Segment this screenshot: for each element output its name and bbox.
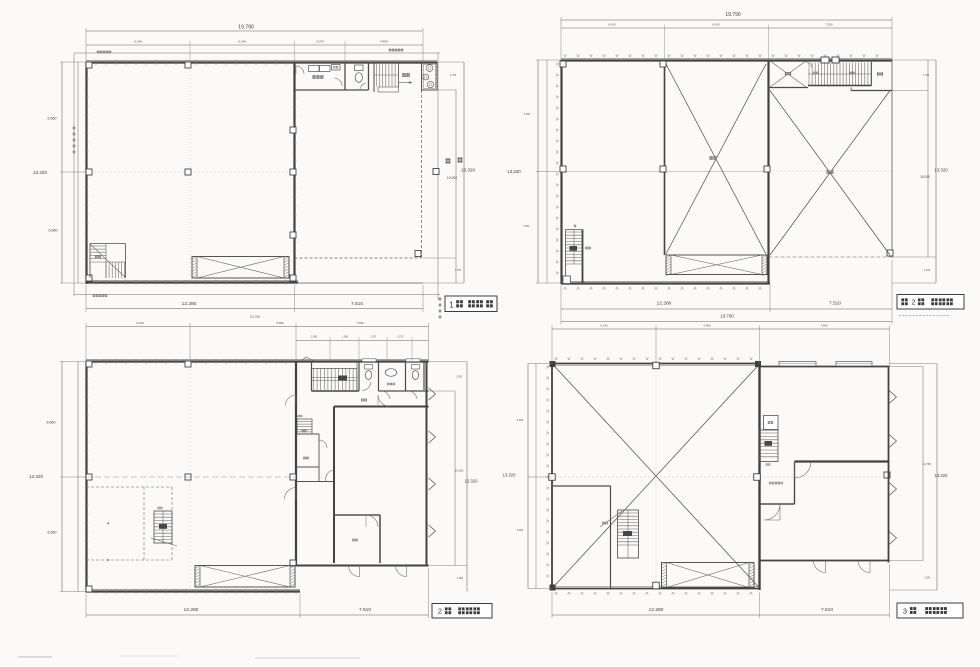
svg-text:19.790: 19.790 xyxy=(720,314,734,319)
svg-text:1.675: 1.675 xyxy=(370,336,377,339)
svg-text:1.175: 1.175 xyxy=(397,336,404,339)
svg-text:10.000: 10.000 xyxy=(447,176,457,180)
svg-text:19.790: 19.790 xyxy=(725,12,741,18)
svg-text:13.320: 13.320 xyxy=(33,170,47,175)
svg-text:12.280: 12.280 xyxy=(184,607,199,613)
svg-text:1.590: 1.590 xyxy=(342,336,349,339)
svg-text:5.990: 5.990 xyxy=(276,321,284,325)
svg-text:13.320: 13.320 xyxy=(503,473,516,478)
svg-text:3.075: 3.075 xyxy=(316,40,324,44)
svg-text:6.660: 6.660 xyxy=(49,229,58,233)
svg-text:7.490: 7.490 xyxy=(356,321,364,325)
svg-text:5.460: 5.460 xyxy=(524,113,531,116)
svg-text:7.510: 7.510 xyxy=(351,301,363,307)
svg-text:10.000: 10.000 xyxy=(920,175,930,179)
svg-text:4.495: 4.495 xyxy=(380,40,388,44)
svg-text:19.790: 19.790 xyxy=(250,315,260,319)
svg-text:13.320: 13.320 xyxy=(29,474,43,479)
svg-text:13.320: 13.320 xyxy=(935,473,948,478)
svg-text:6.660: 6.660 xyxy=(517,419,524,422)
svg-text:6.660: 6.660 xyxy=(47,421,56,425)
svg-text:7.510: 7.510 xyxy=(359,607,371,613)
svg-text:1.590: 1.590 xyxy=(924,577,931,580)
svg-text:1.750: 1.750 xyxy=(450,74,457,77)
svg-text:7.510: 7.510 xyxy=(829,301,841,307)
svg-text:1.750: 1.750 xyxy=(923,74,930,77)
svg-text:13.320: 13.320 xyxy=(507,169,521,174)
svg-text:6.140: 6.140 xyxy=(134,40,142,44)
svg-text:10.200: 10.200 xyxy=(455,469,464,473)
svg-text:12.280: 12.280 xyxy=(657,301,672,307)
svg-text:6.140: 6.140 xyxy=(713,23,720,27)
svg-text:6.660: 6.660 xyxy=(48,117,57,121)
svg-text:6.660: 6.660 xyxy=(48,531,57,535)
svg-text:1.080: 1.080 xyxy=(457,577,464,580)
svg-text:7.660: 7.660 xyxy=(821,324,828,328)
svg-text:6.660: 6.660 xyxy=(517,529,524,532)
svg-text:13.320: 13.320 xyxy=(934,168,948,173)
svg-text:6.140: 6.140 xyxy=(238,40,246,44)
svg-text:6.140: 6.140 xyxy=(609,23,616,27)
svg-text:2.090: 2.090 xyxy=(311,336,318,339)
svg-text:11.750: 11.750 xyxy=(923,462,931,466)
svg-text:3: 3 xyxy=(903,607,907,616)
svg-text:2: 2 xyxy=(438,607,442,616)
svg-text:1.550: 1.550 xyxy=(456,376,463,379)
svg-text:12.280: 12.280 xyxy=(649,607,664,613)
svg-text:7.510: 7.510 xyxy=(821,607,833,613)
svg-text:7.860: 7.860 xyxy=(523,225,530,228)
svg-text:5.990: 5.990 xyxy=(704,324,711,328)
svg-text:6.140: 6.140 xyxy=(136,321,144,325)
svg-text:13.320: 13.320 xyxy=(465,479,478,484)
svg-text:7.510: 7.510 xyxy=(826,23,833,27)
svg-text:1.570: 1.570 xyxy=(455,269,462,272)
svg-text:13.320: 13.320 xyxy=(461,168,475,173)
svg-text:19.790: 19.790 xyxy=(238,25,254,31)
svg-text:1.570: 1.570 xyxy=(924,269,931,272)
svg-text:12.280: 12.280 xyxy=(182,301,197,307)
svg-text:6.140: 6.140 xyxy=(601,324,608,328)
svg-text:2: 2 xyxy=(911,298,915,307)
svg-text:1: 1 xyxy=(449,301,454,310)
